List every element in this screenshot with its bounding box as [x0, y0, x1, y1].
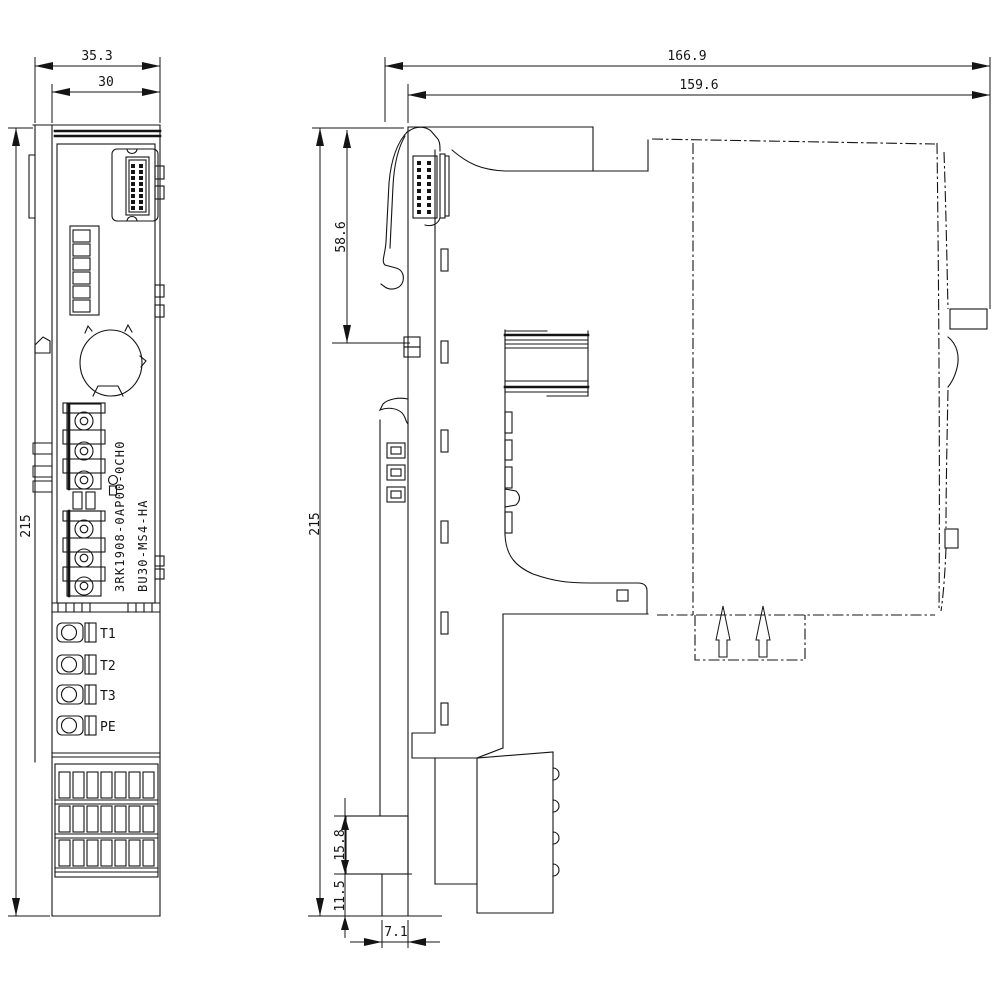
terminal-label-t3: T3	[100, 689, 116, 704]
dim-side-upper-height-label: 58.6	[334, 221, 349, 252]
dim-side-mounting-depth-label: 159.6	[679, 78, 718, 93]
catch-bullet	[505, 489, 520, 507]
arrowhead	[972, 91, 990, 99]
product-code-label: BU30-MS4-HA	[136, 499, 150, 592]
arrowhead	[343, 325, 351, 343]
arrowhead	[12, 128, 20, 146]
dim-foot-stem-height: 11.5	[333, 880, 349, 930]
rail-clip	[404, 337, 420, 347]
lower-catch-icon	[380, 398, 408, 424]
front-view: 35.3 30 215	[8, 49, 164, 916]
dim-side-height: 215	[308, 128, 442, 916]
terminal-bumps	[553, 768, 559, 876]
dim-side-height-label: 215	[308, 512, 323, 535]
part-number-label: 3RK1908-0AP00-0CH0	[113, 440, 127, 592]
comb-teeth-row	[59, 806, 154, 832]
release-lever-icon	[35, 337, 50, 353]
dimension-drawing: 35.3 30 215	[0, 0, 1000, 1000]
section-divider	[52, 603, 160, 612]
arrowhead	[364, 938, 382, 946]
round-plug-opening	[80, 325, 146, 396]
arrowhead	[142, 88, 160, 96]
test-terminal-icon	[57, 623, 96, 642]
test-terminal-icon	[57, 655, 96, 674]
bus-connector-front-icon	[112, 149, 158, 221]
foot-square	[617, 590, 628, 601]
din-clip-notches	[33, 443, 52, 492]
screw-icon	[75, 577, 93, 595]
technical-drawing-page: 35.3 30 215	[0, 0, 1000, 1000]
comb-teeth-row	[59, 772, 154, 798]
terminal-label-t1: T1	[100, 627, 116, 642]
arrowhead	[316, 898, 324, 916]
arrowhead	[341, 860, 349, 874]
arrowhead	[341, 916, 349, 930]
rail-clip	[404, 347, 420, 357]
side-bump	[948, 337, 958, 387]
connector-pins	[131, 164, 143, 210]
arrowhead	[385, 62, 403, 70]
dim-front-overall-width-label: 35.3	[81, 49, 112, 64]
plug-arrow-icon	[756, 606, 770, 657]
dim-side-mounting-depth: 159.6	[408, 78, 990, 123]
bus-connector-side-icon	[409, 127, 449, 225]
test-plug-buttons	[387, 443, 405, 502]
side-module-outline	[346, 127, 648, 916]
side-view: 166.9 159.6 215 58.6	[308, 49, 990, 948]
terminal-link-pieces	[73, 492, 95, 509]
screw-icon	[75, 520, 93, 538]
dim-foot-stem-width-label: 7.1	[384, 925, 407, 940]
arrowhead	[408, 938, 426, 946]
side-lug-small	[945, 529, 958, 548]
rail-clip-column	[505, 330, 520, 535]
arrowhead	[316, 128, 324, 146]
dim-front-height-label: 215	[19, 514, 34, 537]
arrowhead	[972, 62, 990, 70]
body-lower-outline	[435, 535, 648, 913]
plug-arrows-box	[695, 606, 805, 660]
phantom-mounted-module	[652, 139, 987, 660]
side-lug	[950, 309, 987, 329]
dim-front-body-width-label: 30	[98, 75, 114, 90]
screw-icon	[75, 412, 93, 430]
arrowhead	[12, 898, 20, 916]
test-terminal-rows: T1 T2 T3 PE	[57, 623, 116, 735]
terminal-label-t2: T2	[100, 659, 116, 674]
arrowhead	[35, 62, 53, 70]
screw-icon	[75, 471, 93, 489]
dim-front-height: 215	[8, 128, 50, 916]
face-details	[380, 337, 420, 502]
connector-pins	[417, 161, 431, 214]
arrowhead	[408, 91, 426, 99]
arrowhead	[52, 88, 70, 96]
dim-foot-stem-width: 7.1	[350, 920, 440, 948]
test-terminal-icon	[57, 685, 96, 704]
dim-front-body-width: 30	[52, 75, 160, 123]
dip-switch-block	[70, 226, 99, 315]
flange-tab	[29, 155, 35, 218]
terminal-block-upper	[63, 403, 105, 489]
terminal-block-lower	[63, 511, 105, 596]
din-rail-symbol	[505, 331, 588, 396]
arrowhead	[343, 130, 351, 148]
inner-panel	[412, 150, 477, 758]
arrowhead	[341, 816, 349, 830]
dim-foot-stem-height-label: 11.5	[333, 880, 348, 911]
din-hook-icon	[381, 131, 408, 289]
dim-side-overall-depth-label: 166.9	[667, 49, 706, 64]
arrowhead	[142, 62, 160, 70]
test-terminal-icon	[57, 716, 96, 735]
comb-teeth-row	[59, 840, 154, 866]
foot-block	[346, 816, 408, 874]
screw-icon	[75, 442, 93, 460]
terminal-label-pe: PE	[100, 720, 116, 735]
plug-arrow-icon	[716, 606, 730, 657]
comb-terminal-section	[52, 753, 160, 877]
dim-side-upper-height: 58.6	[332, 130, 410, 343]
